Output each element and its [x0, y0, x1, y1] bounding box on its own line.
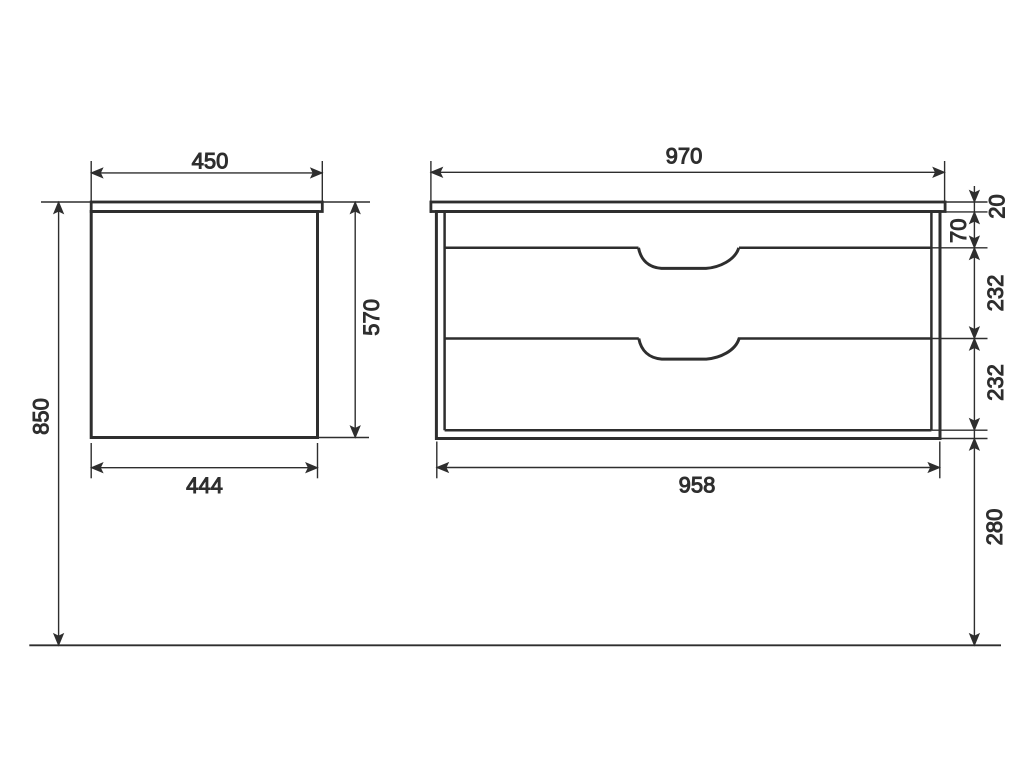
svg-text:232: 232	[983, 364, 1008, 401]
svg-text:450: 450	[192, 148, 229, 173]
svg-text:20: 20	[985, 194, 1010, 218]
svg-text:570: 570	[359, 299, 384, 336]
svg-text:70: 70	[946, 219, 971, 243]
svg-text:958: 958	[679, 473, 716, 498]
svg-text:444: 444	[186, 473, 223, 498]
svg-text:280: 280	[982, 509, 1007, 546]
svg-text:850: 850	[29, 398, 54, 435]
svg-text:232: 232	[983, 275, 1008, 312]
svg-text:970: 970	[666, 144, 703, 169]
